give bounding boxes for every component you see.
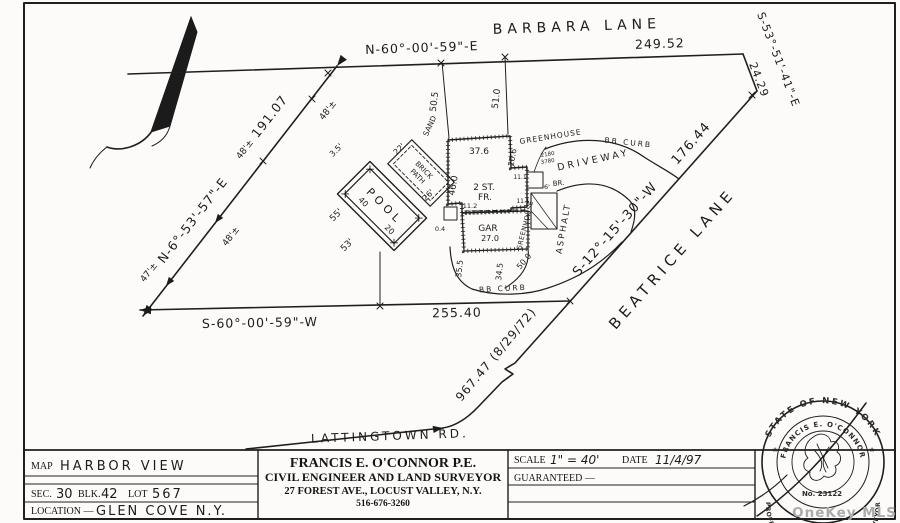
driveway-label: DRIVEWAY (556, 148, 630, 174)
sec-value: 30 (56, 487, 73, 502)
pool-offset-2: 55' (328, 207, 345, 224)
lot-value: 567 (152, 487, 183, 502)
house-story-label-2: FR. (478, 193, 492, 203)
location-label: LOCATION — (31, 506, 94, 517)
lot-label: LOT (128, 489, 147, 500)
blk-value: 42 (101, 487, 118, 502)
west-tick-3: 48'± (318, 99, 339, 122)
drive-dim-2: 34.5 (494, 262, 505, 281)
bearing-south: S-60°-00'-59"-W (202, 314, 318, 331)
survey-drawing: BARBARA LANE N-60°-00'-59"-E 249.52 S-53… (0, 0, 900, 523)
house-step-dim: 11.2 (463, 202, 477, 210)
scale-value: 1" = 40' (550, 453, 599, 467)
svg-text:FRANCIS E. O'CONNOR: FRANCIS E. O'CONNOR (779, 420, 866, 459)
path-dim-1: 22' (392, 142, 407, 157)
drive-radius: 50.0 (515, 252, 533, 271)
north-arrow-icon (90, 17, 197, 168)
driveway: DRIVEWAY ASPHALT BR. BB CURB BB CURB (450, 136, 679, 295)
firm-phone: 516-676-3260 (356, 499, 410, 509)
greenhouse-callout: GREENHOUSE (519, 127, 582, 146)
surveyor-seal: STATE OF NEW YORK PROFESSIONAL ENGINEER … (744, 396, 884, 523)
seal-star-right-icon: ★ (869, 446, 875, 454)
house-right-dim: 20.6 (507, 148, 519, 167)
watermark: OneKey MLS (792, 505, 897, 521)
pool-offset-1: 3.5' (328, 142, 345, 159)
barbara-lane-line (128, 54, 743, 74)
sand-label: SAND (421, 114, 438, 137)
date-value: 11/4/97 (655, 453, 702, 467)
blk-label: BLK. (78, 489, 101, 500)
greenhouse-width: 6' (544, 183, 550, 191)
scale-label: SCALE (514, 455, 546, 466)
seal-star-left-icon: ★ (772, 446, 778, 454)
bearing-labels: BARBARA LANE N-60°-00'-59"-E 249.52 S-53… (139, 10, 802, 445)
tie-right: 51.0 (491, 88, 503, 109)
survey-x-marks (260, 54, 755, 309)
seal-name-text: FRANCIS E. O'CONNOR (779, 420, 866, 459)
garage-width: 27.0 (481, 234, 499, 243)
south-boundary-line (140, 301, 570, 310)
garage-label: GAR (478, 224, 497, 234)
bearing-north: N-60°-00'-59"-E (365, 38, 479, 57)
west-tick-1: 48'± (221, 225, 242, 248)
guaranteed-label: GUARANTEED — (514, 473, 596, 484)
house-offset-dim: 0.4 (435, 225, 445, 233)
distance-north: 249.52 (635, 35, 685, 52)
map-label: MAP (31, 461, 53, 472)
brick-apron-label: BR. (552, 179, 564, 188)
side-structure (527, 172, 543, 188)
date-label: DATE (622, 455, 648, 466)
greenhouse-dim-2: 11.1 (516, 198, 530, 205)
distance-east: 176.44 (669, 119, 714, 168)
distance-south: 255.40 (432, 305, 482, 321)
firm-title: CIVIL ENGINEER AND LAND SURVEYOR (265, 470, 502, 484)
road-label-lattingtown: LATTINGTOWN RD. (311, 426, 469, 446)
firm-address: 27 FOREST AVE., LOCUST VALLEY, N.Y. (284, 486, 482, 497)
house-left-dim: 46.0 (447, 175, 460, 197)
bearing-east: S-12°-15'-30"-W (570, 180, 661, 280)
firm-name: FRANCIS E. O'CONNOR P.E. (290, 456, 476, 471)
drive-dim-1: 35.5 (454, 259, 465, 278)
seal-number-text: No. 23122 (802, 490, 842, 498)
tie-left: 50.5 (429, 91, 441, 112)
pool-offset-3: 53' (339, 237, 356, 254)
map-value: HARBOR VIEW (60, 459, 187, 474)
greenhouse-num-2: 3780 (540, 158, 555, 166)
porch-step (444, 207, 457, 220)
greenhouse-dim-1: 11.1 (513, 174, 527, 181)
path-dim-2: 26' (421, 188, 436, 203)
road-label-barbara: BARBARA LANE (492, 16, 661, 38)
survey-sheet: BARBARA LANE N-60°-00'-59"-E 249.52 S-53… (0, 0, 900, 523)
seal-state-text: STATE OF NEW YORK (764, 396, 883, 439)
west-tick-0: 47'± (139, 261, 160, 284)
svg-text:STATE OF NEW YORK: STATE OF NEW YORK (764, 396, 883, 439)
house-width: 37.6 (469, 147, 489, 157)
west-tick-2: 48'± (235, 138, 256, 161)
house-story-label-1: 2 ST. (473, 183, 495, 193)
boundary-lines (128, 54, 757, 449)
location-value: GLEN COVE N.Y. (96, 504, 227, 519)
pool-label: POOL (364, 185, 406, 227)
curb-label-bottom: BB CURB (479, 283, 527, 294)
sec-label: SEC. (31, 489, 52, 500)
greenhouse-hatch (531, 193, 557, 229)
